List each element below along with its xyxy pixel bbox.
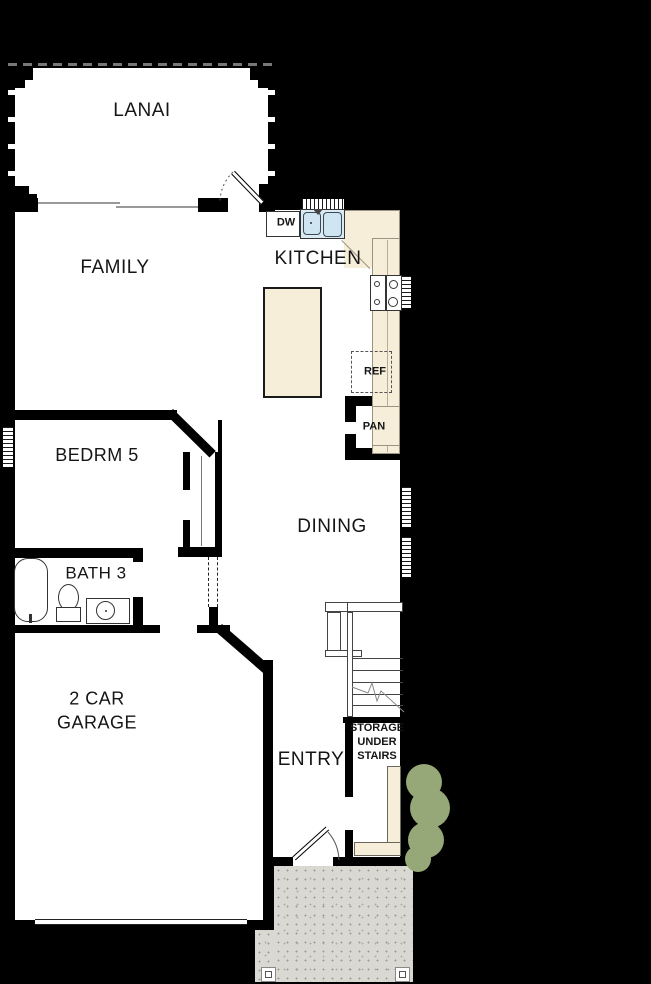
dining-window-1 xyxy=(402,487,411,527)
kitchen-side-window xyxy=(402,276,411,308)
porch-column-left-core xyxy=(265,971,272,978)
tub-faucet xyxy=(29,614,32,623)
stair-railing xyxy=(327,612,341,652)
porch-column-right-core xyxy=(399,971,406,978)
family-bedroom-wall xyxy=(0,410,177,420)
stair-side-wall xyxy=(347,612,353,717)
floor-plan: LANAI FAMILY KITCHEN BEDRM 5 DINING BATH… xyxy=(0,0,651,984)
counter-top-run xyxy=(344,210,400,240)
burner-1 xyxy=(374,281,380,287)
stair-tread xyxy=(353,694,403,695)
hall-floor xyxy=(143,548,213,625)
dining-floor-lower xyxy=(218,557,400,605)
cased-opening-stub xyxy=(209,605,218,625)
garage-hall-door-opening xyxy=(160,625,197,633)
lanai-post-top-left-notch xyxy=(25,80,33,88)
sliding-door-panel-1 xyxy=(38,202,120,204)
room-label-bedroom5: BEDRM 5 xyxy=(55,443,139,467)
garage-top-wall xyxy=(0,625,160,633)
burner-4 xyxy=(388,297,398,307)
appliance-label-pantry: PAN xyxy=(363,420,385,435)
closet-rod-line xyxy=(201,456,202,546)
porch-column-right xyxy=(395,967,410,982)
room-label-kitchen: KITCHEN xyxy=(275,246,362,272)
bath-top-wall xyxy=(0,548,143,558)
sink-basin-right xyxy=(323,212,342,237)
closet-right-wall xyxy=(215,452,222,550)
lanai-bottom-wall-mid xyxy=(198,198,228,212)
storage-shelf-bottom xyxy=(354,842,401,856)
kitchen-island xyxy=(263,287,322,398)
garage-front-wall-left xyxy=(0,920,35,932)
stair-tread xyxy=(353,682,403,683)
vanity-drain-dot xyxy=(105,610,107,612)
stair-tread xyxy=(353,670,403,671)
shrub-lobe-4 xyxy=(405,846,431,872)
room-label-family: FAMILY xyxy=(80,255,149,281)
storage-left-wall-lower xyxy=(345,830,353,857)
sink-drain-dot xyxy=(310,222,312,224)
dining-window-2 xyxy=(402,537,411,577)
storage-label-line1: STORAGE xyxy=(350,721,404,735)
bath-right-wall-upper xyxy=(133,548,143,562)
garage-label-line2: GARAGE xyxy=(57,711,137,735)
lanai-bottom-wall-left xyxy=(8,198,38,212)
ref-wall-stub-v xyxy=(345,396,356,422)
room-label-bath3: BATH 3 xyxy=(65,563,126,586)
appliance-label-refrigerator: REF xyxy=(364,365,386,380)
lanai-screen-top xyxy=(8,63,275,66)
sliding-door-panel-2 xyxy=(116,206,198,208)
garage-floor xyxy=(15,633,263,920)
bedroom-window xyxy=(3,427,13,467)
lanai-slider-opening xyxy=(38,198,198,212)
closet-left-wall-upper xyxy=(183,452,190,490)
stair-rail-bar xyxy=(325,650,362,657)
burner-3 xyxy=(389,280,398,289)
closet-left-wall-lower xyxy=(183,520,190,548)
sink-faucet xyxy=(313,209,323,215)
stair-tread xyxy=(353,705,403,706)
room-label-entry: ENTRY xyxy=(278,747,345,773)
entry-corner-floor xyxy=(263,633,273,663)
front-porch xyxy=(274,866,413,982)
front-door-opening xyxy=(293,857,333,866)
lanai-post-bottom-left-notch xyxy=(29,186,37,194)
room-label-storage: STORAGE UNDER STAIRS xyxy=(350,721,404,763)
toilet-tank xyxy=(56,607,81,622)
stair-tread xyxy=(353,658,403,659)
stair-landing-tick xyxy=(347,602,348,612)
sink-basin-left xyxy=(303,212,321,235)
bath-door-opening xyxy=(133,562,143,597)
entry-left-wall xyxy=(263,660,273,932)
room-label-garage: 2 CAR GARAGE xyxy=(57,687,137,736)
closet-bottom-wall xyxy=(178,547,222,557)
stair-landing xyxy=(325,602,403,612)
appliance-label-dishwasher: DW xyxy=(277,216,295,231)
garage-label-line1: 2 CAR xyxy=(57,687,137,711)
burner-2 xyxy=(374,299,380,305)
garage-door xyxy=(35,919,247,925)
lanai-post-top-right-notch xyxy=(250,80,258,88)
cased-opening xyxy=(208,557,218,607)
room-label-dining: DINING xyxy=(297,514,367,540)
porch-column-left xyxy=(261,967,276,982)
storage-label-line3: STAIRS xyxy=(350,749,404,763)
room-label-lanai: LANAI xyxy=(113,98,170,124)
storage-door-opening xyxy=(345,797,353,830)
kitchen-window xyxy=(302,199,344,209)
left-exterior-wall xyxy=(0,198,15,932)
bathtub xyxy=(14,558,48,622)
storage-label-line2: UNDER xyxy=(350,735,404,749)
